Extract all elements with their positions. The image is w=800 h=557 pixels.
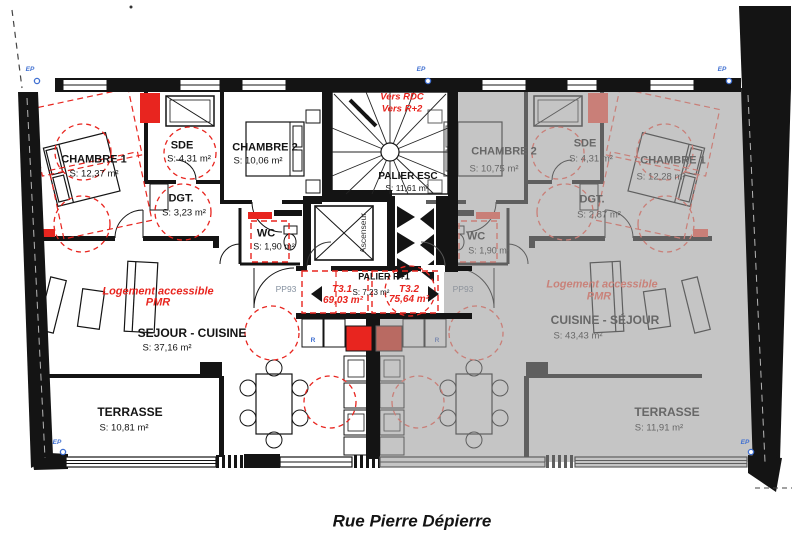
room-area-sejour-right: S: 43,43 m² <box>553 331 602 341</box>
room-area-sde-right: S: 4,31 m² <box>569 154 613 164</box>
room-label-sejour-left: SEJOUR - CUISINE <box>138 327 247 339</box>
duct-right <box>376 326 402 351</box>
room-area-chambre2-left: S: 10,06 m² <box>233 156 282 166</box>
pmr-note-line2-left: PMR <box>146 298 170 309</box>
door-tag-pp93-right: PP93 <box>453 285 474 294</box>
ep-tag-1: EP <box>26 67 35 74</box>
ep-tag-3: EP <box>718 67 727 74</box>
ep-tag-2: EP <box>417 67 426 74</box>
room-label-palier-esc: PALIER ESC <box>378 172 437 182</box>
ep-tag-4: EP <box>53 440 62 447</box>
unit-code-t31: T3.1 <box>332 285 352 295</box>
room-label-terrasse-left: TERRASSE <box>97 406 162 418</box>
unit-area-t31: 69,03 m² <box>323 296 363 306</box>
room-area-dgt-right: S: 2,87 m² <box>577 210 621 220</box>
room-area-chambre2-right: S: 10,75 m² <box>469 164 518 174</box>
room-label-wc-right: WC <box>467 232 485 243</box>
street-title: Rue Pierre Dépierre <box>333 513 492 530</box>
room-label-dgt-right: DGT. <box>579 195 604 206</box>
room-label-sde-left: SDE <box>171 141 194 152</box>
elevator-label: Ascenseur <box>359 213 368 253</box>
pmr-note-line1-right: Logement accessible <box>546 280 657 291</box>
pmr-note-line2-right: PMR <box>587 292 611 303</box>
ep-tag-5: EP <box>741 440 750 447</box>
door-tag-pp93-left: PP93 <box>276 285 297 294</box>
room-area-sde-left: S: 4,31 m² <box>167 154 211 164</box>
room-area-chambre1-right: S: 12,28 m² <box>636 172 685 182</box>
room-label-chambre1-right: CHAMBRE 1 <box>640 156 705 167</box>
top-facade <box>55 78 741 92</box>
room-area-palier-esc: S: 11,61 m² <box>385 184 428 193</box>
room-label-palier-r1: PALIER R+1 <box>358 273 410 282</box>
room-area-sejour-left: S: 37,16 m² <box>142 343 191 353</box>
floorplan-page: CHAMBRE 1 S: 12,37 m² SDE S: 4,31 m² CHA… <box>0 0 800 557</box>
room-area-wc-left: S: 1,90 m² <box>253 243 295 252</box>
unit-area-t32: 75,64 m² <box>389 295 429 305</box>
left-apartment-linework <box>36 92 368 457</box>
room-area-terrasse-right: S: 11,91 m² <box>635 423 683 433</box>
room-label-chambre1-left: CHAMBRE 1 <box>61 155 126 166</box>
room-label-dgt-left: DGT. <box>168 194 193 205</box>
room-area-terrasse-left: S: 10,81 m² <box>99 423 148 433</box>
room-label-wc-left: WC <box>257 229 275 240</box>
room-area-wc-right: S: 1,90 m² <box>468 247 510 256</box>
duct-tag-r-left: R <box>311 338 316 345</box>
room-label-terrasse-right: TERRASSE <box>634 406 699 418</box>
room-area-chambre1-left: S: 12,37 m² <box>69 169 118 179</box>
room-label-chambre2-right: CHAMBRE 2 <box>471 147 536 158</box>
duct-tag-r-right: R <box>435 338 440 345</box>
room-label-sejour-right: CUISINE - SÉJOUR <box>551 314 660 326</box>
room-area-dgt-left: S: 3,23 m² <box>162 208 206 218</box>
stair-direction-note-2: Vers R+2 <box>382 104 423 114</box>
room-label-chambre2-left: CHAMBRE 2 <box>232 143 297 154</box>
duct-left <box>346 326 372 351</box>
room-label-sde-right: SDE <box>574 139 597 150</box>
stair-direction-note-1: Vers RDC <box>380 92 423 102</box>
